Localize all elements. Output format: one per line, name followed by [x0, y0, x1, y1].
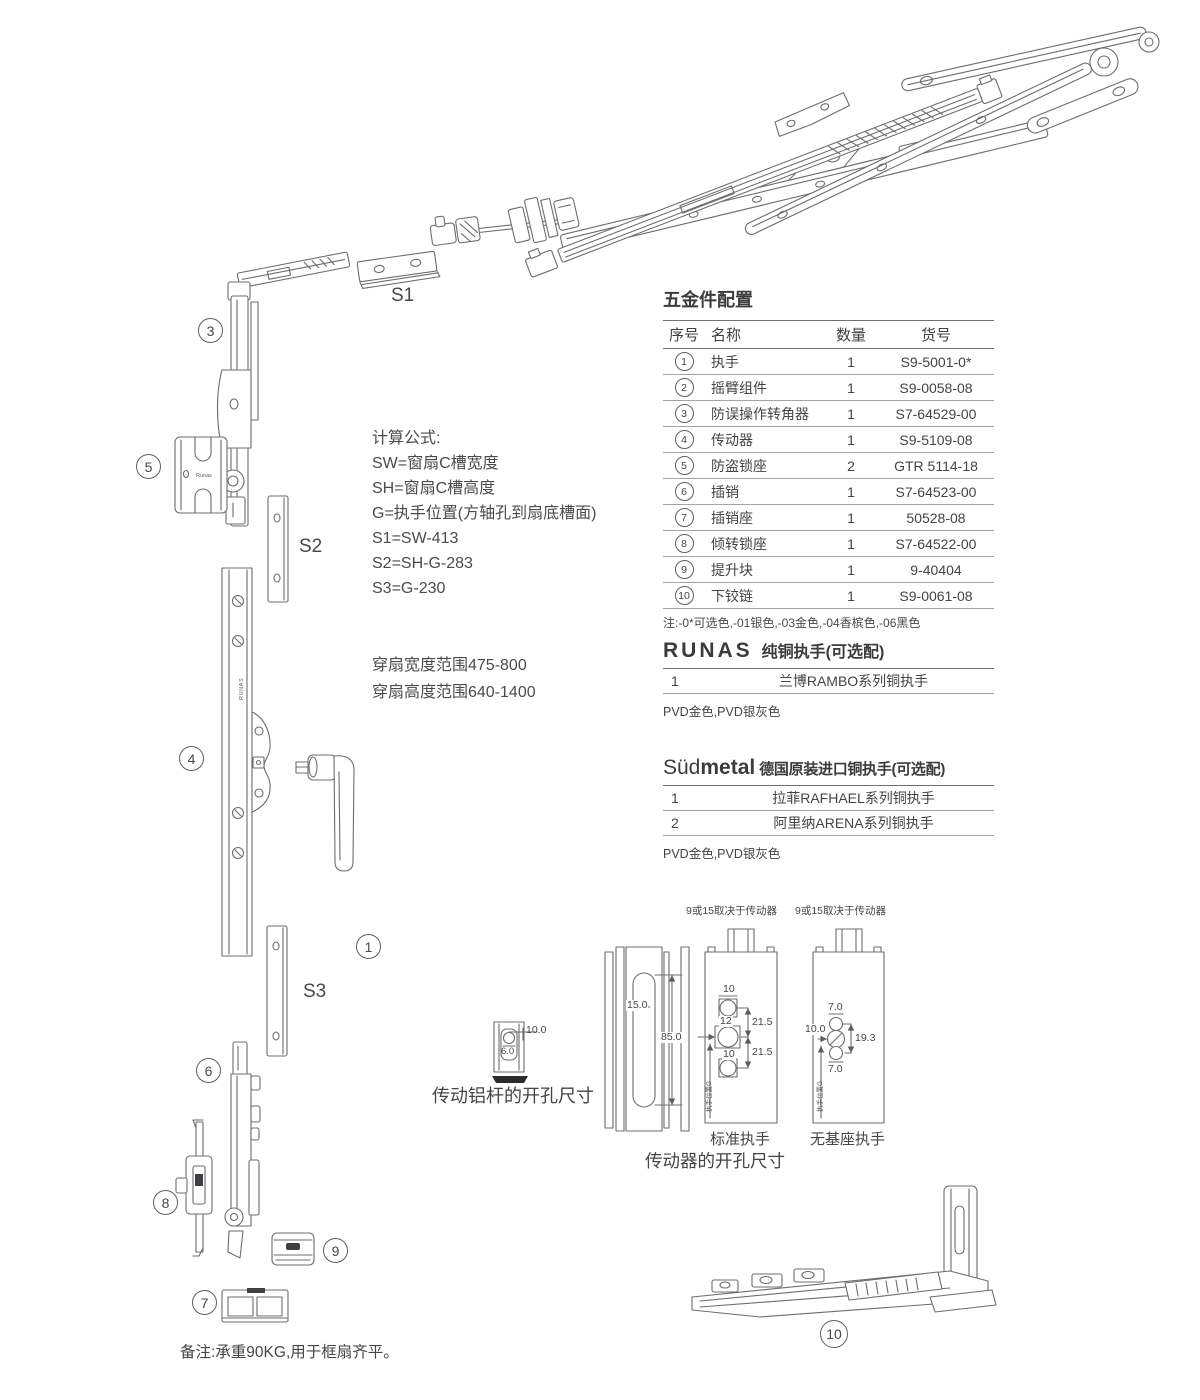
bottom-hinge — [692, 1186, 996, 1317]
callout-5: 5 — [136, 454, 161, 479]
option-qty: 1 — [663, 673, 713, 689]
row-qty: 1 — [824, 510, 878, 526]
row-qty: 1 — [824, 536, 878, 552]
sash-height-range: 穿扇高度范围640-1400 — [372, 679, 536, 706]
formula-line: S3=G-230 — [372, 576, 596, 601]
spec-sheet-page: Runas RUNAS 1 3 4 5 6 7 8 9 10 S1 S2 S3 … — [0, 0, 1200, 1400]
row-code: S9-5109-08 — [878, 432, 994, 448]
callout-4: 4 — [179, 746, 204, 771]
s2-label: S2 — [299, 536, 322, 558]
row-num: 5 — [675, 456, 694, 475]
parts-table-header: 序号 名称 数量 货号 — [663, 321, 994, 349]
row-num: 9 — [675, 560, 694, 579]
row-code: 50528-08 — [878, 510, 994, 526]
row-name: 插销座 — [705, 508, 824, 528]
formula-title: 计算公式: — [372, 426, 596, 451]
s3-label: S3 — [303, 981, 326, 1003]
option-qty: 2 — [663, 815, 713, 831]
tilt-lock-keeper — [176, 1120, 212, 1256]
table-row: 9 提升块 1 9-40404 — [663, 557, 994, 583]
sudmetal-logo: Südmetal — [663, 756, 755, 780]
option-row: 1 拉菲RAFHAEL系列铜执手 — [663, 786, 994, 811]
formula-line: SH=窗扇C槽高度 — [372, 476, 596, 501]
profile-length-dim: 85.0 — [660, 1032, 682, 1043]
callout-9: 9 — [323, 1238, 348, 1263]
bar-brand-mark: RUNAS — [239, 678, 245, 700]
no-base-dim-bottom: 7.0 — [827, 1064, 844, 1075]
table-row: 1 执手 1 S9-5001-0* — [663, 349, 994, 375]
callout-8: 8 — [153, 1190, 178, 1215]
window-handle — [296, 755, 354, 871]
option-name: 兰博RAMBO系列铜执手 — [713, 671, 994, 691]
table-row: 10 下铰链 1 S9-0061-08 — [663, 583, 994, 609]
row-code: S7-64529-00 — [878, 406, 994, 422]
row-qty: 1 — [824, 380, 878, 396]
sudmetal-title: 德国原装进口铜执手(可选配) — [759, 758, 945, 779]
bolt — [225, 1042, 260, 1258]
row-name: 插销 — [705, 482, 824, 502]
option-name: 阿里纳ARENA系列铜执手 — [713, 813, 994, 833]
table-row: 6 插销 1 S7-64523-00 — [663, 479, 994, 505]
row-qty: 2 — [824, 458, 878, 474]
no-base-dim-right: 19.3 — [855, 1033, 875, 1044]
row-name: 执手 — [705, 352, 824, 372]
row-qty: 1 — [824, 432, 878, 448]
row-num: 10 — [675, 586, 694, 605]
row-num: 7 — [675, 508, 694, 527]
standard-header: 9或15取决于传动器 — [686, 903, 777, 918]
no-base-axis-label: 执手位置G — [814, 1081, 824, 1112]
row-qty: 1 — [824, 588, 878, 604]
row-code: S9-0058-08 — [878, 380, 994, 396]
row-name: 传动器 — [705, 430, 824, 450]
no-base-dim-top: 7.0 — [827, 1002, 844, 1013]
row-code: S7-64523-00 — [878, 484, 994, 500]
header-index: 序号 — [663, 324, 705, 345]
callout-6: 6 — [196, 1058, 221, 1083]
standard-label: 标准执手 — [710, 1128, 770, 1149]
row-qty: 1 — [824, 562, 878, 578]
footer-note: 备注:承重90KG,用于框扇齐平。 — [180, 1340, 399, 1362]
row-code: S7-64522-00 — [878, 536, 994, 552]
row-name: 防盗锁座 — [705, 456, 824, 476]
callout-7: 7 — [192, 1290, 217, 1315]
standard-dim-top: 10 — [722, 984, 736, 995]
alu-rod-caption: 传动铝杆的开孔尺寸 — [432, 1082, 594, 1108]
no-base-header: 9或15取决于传动器 — [795, 903, 886, 918]
row-qty: 1 — [824, 354, 878, 370]
drive-gear-bar — [222, 568, 270, 956]
row-name: 防误操作转角器 — [705, 404, 824, 424]
standard-axis-label: 执手位置G — [703, 1081, 713, 1112]
runas-optional-block: RUNAS 纯铜执手(可选配) 1 兰博RAMBO系列铜执手 PVD金色,PVD… — [663, 638, 994, 720]
row-num: 3 — [675, 404, 694, 423]
no-base-dim-left: 10.0 — [804, 1024, 826, 1035]
table-row: 4 传动器 1 S9-5109-08 — [663, 427, 994, 453]
corner-drive — [218, 252, 350, 526]
runas-logo: RUNAS — [663, 639, 753, 663]
option-name: 拉菲RAFHAEL系列铜执手 — [713, 788, 994, 808]
table-row: 7 插销座 1 50528-08 — [663, 505, 994, 531]
row-num: 6 — [675, 482, 694, 501]
pvd-note: PVD金色,PVD银灰色 — [663, 701, 994, 720]
standard-dim-right-bottom: 21.5 — [752, 1047, 772, 1058]
runas-title: 纯铜执手(可选配) — [762, 638, 885, 662]
table-row: 5 防盗锁座 2 GTR 5114-18 — [663, 453, 994, 479]
row-code: S9-0061-08 — [878, 588, 994, 604]
row-qty: 1 — [824, 484, 878, 500]
callout-10: 10 — [820, 1320, 848, 1348]
row-num: 4 — [675, 430, 694, 449]
row-name: 倾转锁座 — [705, 534, 824, 554]
s1-label: S1 — [391, 285, 414, 307]
profile-slot-dim: 15.0 — [626, 1000, 648, 1011]
s2-strip — [268, 496, 288, 602]
color-options-note: 注:-0*可选色,-01银色,-03金色,-04香槟色,-06黑色 — [663, 614, 994, 631]
row-code: S9-5001-0* — [878, 354, 994, 370]
formula-block: 计算公式: SW=窗扇C槽宽度 SH=窗扇C槽高度 G=执手位置(方轴孔到扇底槽… — [372, 426, 596, 601]
row-num: 8 — [675, 534, 694, 553]
callout-3: 3 — [198, 318, 223, 343]
option-row: 2 阿里纳ARENA系列铜执手 — [663, 811, 994, 836]
table-row: 3 防误操作转角器 1 S7-64529-00 — [663, 401, 994, 427]
row-name: 摇臂组件 — [705, 378, 824, 398]
driver-holes-caption: 传动器的开孔尺寸 — [645, 1148, 785, 1173]
standard-dim-right-top: 21.5 — [752, 1017, 772, 1028]
diagram-art: Runas RUNAS — [0, 0, 1200, 1400]
sash-width-range: 穿扇宽度范围475-800 — [372, 652, 536, 679]
row-num: 1 — [675, 352, 694, 371]
table-row: 2 摇臂组件 1 S9-0058-08 — [663, 375, 994, 401]
bolt-keeper — [222, 1288, 288, 1322]
option-row: 1 兰博RAMBO系列铜执手 — [663, 669, 994, 694]
parts-table: 五金件配置 序号 名称 数量 货号 1 执手 1 S9-5001-0* 2 摇臂… — [663, 286, 994, 631]
standard-dim-mid: 12 — [719, 1016, 733, 1027]
row-num: 2 — [675, 378, 694, 397]
option-qty: 1 — [663, 790, 713, 806]
row-code: 9-40404 — [878, 562, 994, 578]
header-name: 名称 — [705, 324, 824, 345]
pvd-note: PVD金色,PVD银灰色 — [663, 843, 994, 862]
formula-line: SW=窗扇C槽宽度 — [372, 451, 596, 476]
keeper-brand-mark: Runas — [196, 473, 212, 479]
alu-rod-dim-height: 6.0 — [501, 1047, 514, 1057]
no-base-label: 无基座执手 — [810, 1128, 885, 1149]
s3-strip — [267, 926, 287, 1056]
formula-line: S1=SW-413 — [372, 526, 596, 551]
callout-1: 1 — [356, 934, 381, 959]
header-qty: 数量 — [824, 324, 878, 345]
row-name: 下铰链 — [705, 586, 824, 606]
lift-block — [272, 1233, 314, 1265]
header-code: 货号 — [878, 324, 994, 345]
scissor-arm-assembly — [429, 26, 1159, 277]
table-row: 8 倾转锁座 1 S7-64522-00 — [663, 531, 994, 557]
sash-range-block: 穿扇宽度范围475-800 穿扇高度范围640-1400 — [372, 652, 536, 706]
alu-rod-dim-width: 10.0 — [526, 1025, 546, 1036]
formula-line: S2=SH-G-283 — [372, 551, 596, 576]
row-name: 提升块 — [705, 560, 824, 580]
s1-plate — [357, 251, 440, 289]
row-code: GTR 5114-18 — [878, 458, 994, 474]
row-qty: 1 — [824, 406, 878, 422]
standard-dim-bottom: 10 — [722, 1049, 736, 1060]
sudmetal-optional-block: Südmetal 德国原装进口铜执手(可选配) 1 拉菲RAFHAEL系列铜执手… — [663, 756, 994, 862]
parts-table-title: 五金件配置 — [663, 286, 994, 321]
formula-line: G=执手位置(方轴孔到扇底槽面) — [372, 501, 596, 526]
